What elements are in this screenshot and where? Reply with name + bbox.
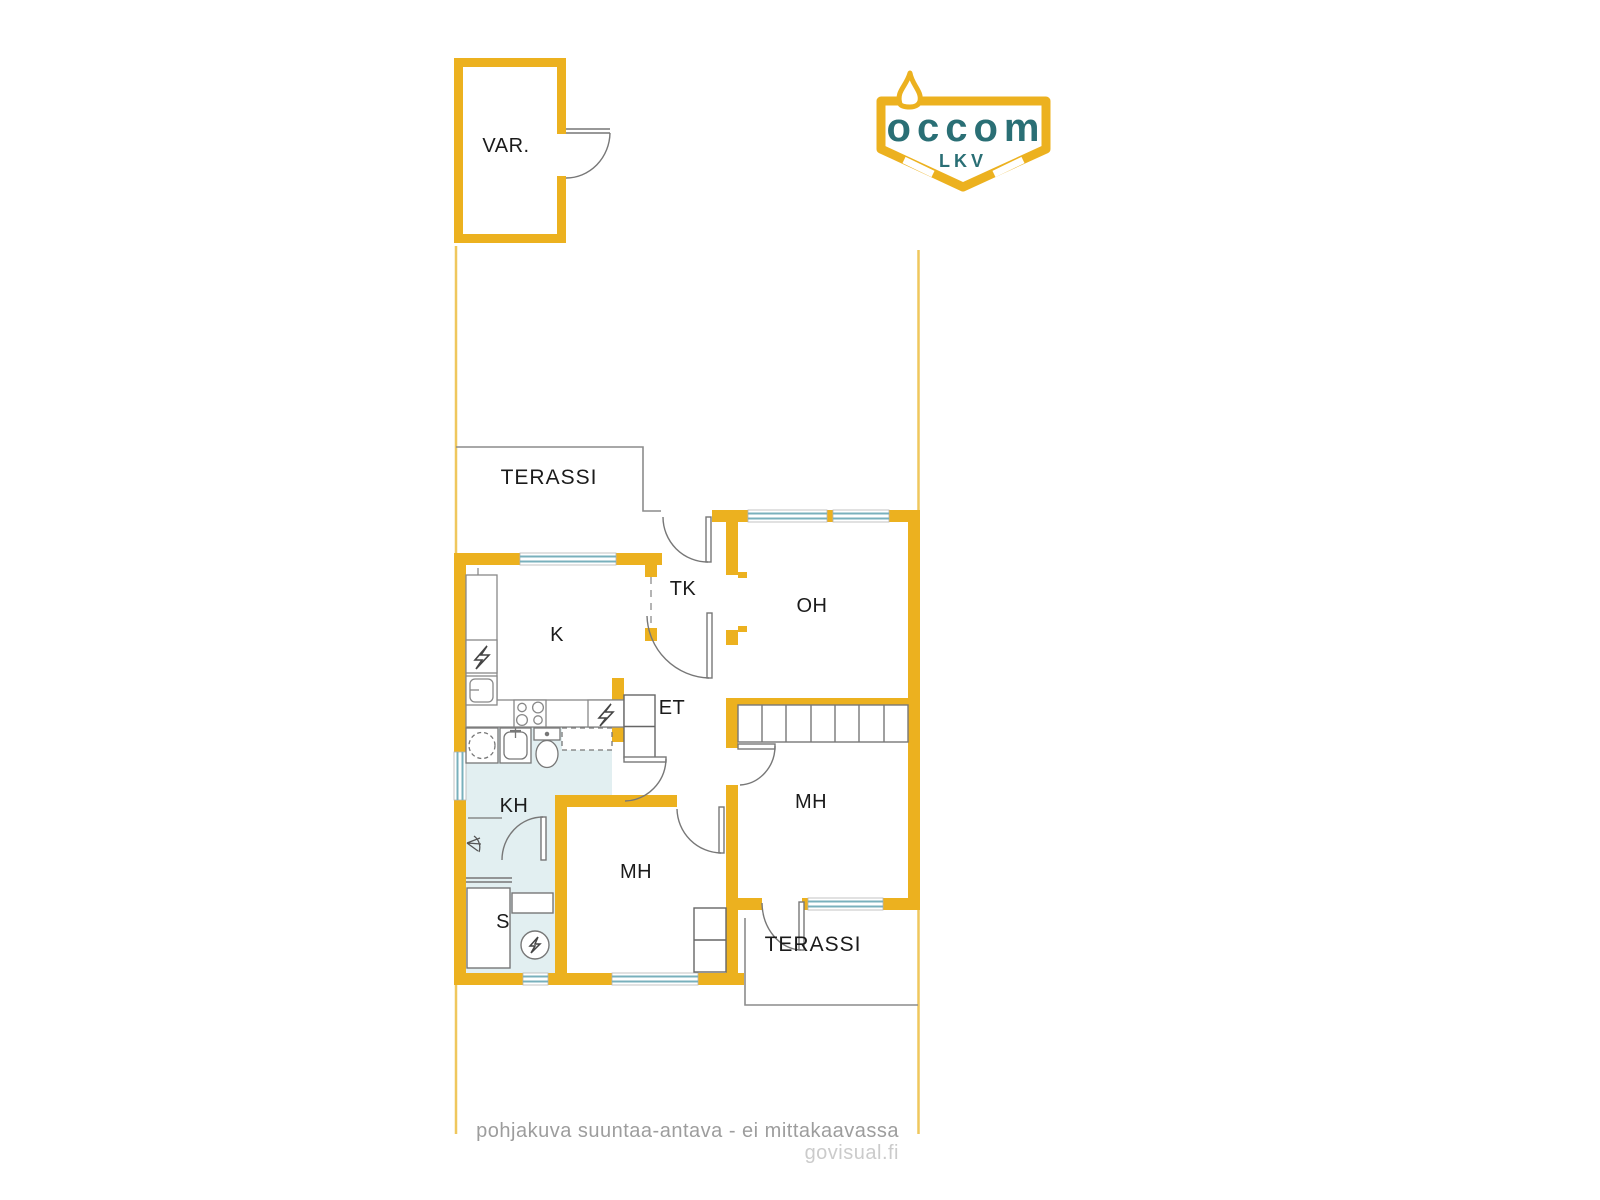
window-living-top-2 [833, 510, 889, 522]
wall-segment [645, 553, 657, 577]
wall-segment [827, 510, 833, 522]
room-label-vestibule: TK [670, 578, 697, 600]
toilet-bowl-icon [536, 741, 558, 768]
wall-segment [454, 58, 463, 243]
property-boundary-lines [456, 246, 919, 1134]
window-bedroom-middle-bottom [612, 973, 698, 985]
wall-segment [738, 626, 747, 632]
room-label-living-room: OH [797, 595, 828, 617]
wall-segment [557, 58, 566, 134]
stove-burner [517, 715, 528, 726]
closet-row [738, 705, 908, 742]
wall-segment [738, 698, 908, 705]
bathroom-door [624, 757, 666, 801]
closet-row-outline [738, 705, 908, 742]
bedroom-right-door [738, 744, 775, 785]
wall-segment [726, 785, 738, 985]
cabinets [624, 695, 726, 972]
window-sauna-bottom [523, 973, 548, 985]
sauna-stove-icon [521, 931, 549, 959]
vestibule-inner-door [647, 613, 712, 678]
bedroom-middle-door [677, 807, 724, 853]
room-label-kitchen: K [550, 624, 564, 646]
logo-brand-text: occom [887, 106, 1046, 150]
wall-segment [557, 176, 566, 243]
room-label-storage: VAR. [482, 135, 529, 157]
kitchen-fittings [466, 575, 624, 727]
floor-plan-canvas: VAR. TERASSI K TK OH ET KH MH MH S TERAS… [0, 0, 1600, 1200]
wall-segment [548, 973, 612, 985]
footer-credit: govisual.fi [805, 1142, 899, 1164]
fridge-icon [466, 640, 497, 673]
room-label-hall: ET [659, 697, 686, 719]
stove-burner [534, 716, 542, 724]
dishwasher-icon [588, 700, 624, 727]
washing-machine-drum [469, 733, 495, 759]
wall-segment [645, 628, 657, 641]
wall-segment [555, 795, 567, 973]
front-door [663, 517, 711, 562]
wall-segment [454, 973, 523, 985]
window-kitchen-top [520, 553, 616, 565]
wall-segment [883, 898, 920, 910]
room-label-bedroom-middle: MH [620, 861, 652, 883]
footer-disclaimer: pohjakuva suuntaa-antava - ei mittakaava… [476, 1120, 899, 1142]
toilet-button [545, 732, 548, 735]
stove-burner [518, 703, 526, 711]
room-label-bathroom: KH [500, 795, 529, 817]
sauna-bench-top [512, 893, 553, 913]
logo: occom LKV [881, 73, 1046, 187]
logo-subtitle-text: LKV [939, 151, 987, 171]
wall-segment [454, 553, 520, 565]
bathroom-shelf [562, 728, 612, 750]
wall-segment [712, 510, 748, 522]
room-label-terrace-top: TERASSI [501, 466, 598, 489]
logo-flame-icon [899, 73, 920, 107]
window-bedroom-right-bottom [808, 898, 883, 910]
bottom-terrace-outline [745, 918, 918, 1005]
storage-door [566, 129, 610, 178]
wall-segment [726, 630, 738, 645]
wall-segment [738, 572, 747, 578]
wall-segment [454, 58, 566, 67]
window-living-top-1 [748, 510, 827, 522]
wall-segment [726, 698, 738, 748]
wall-segment [555, 795, 677, 807]
room-label-sauna: S [496, 911, 510, 933]
wall-segment [454, 234, 566, 243]
window-bathroom-left [454, 752, 466, 800]
wall-segment [726, 522, 738, 575]
wall-segment [908, 510, 920, 910]
stove-burner [533, 702, 544, 713]
room-label-bedroom-right: MH [795, 791, 827, 813]
room-label-terrace-bottom: TERASSI [765, 933, 862, 956]
